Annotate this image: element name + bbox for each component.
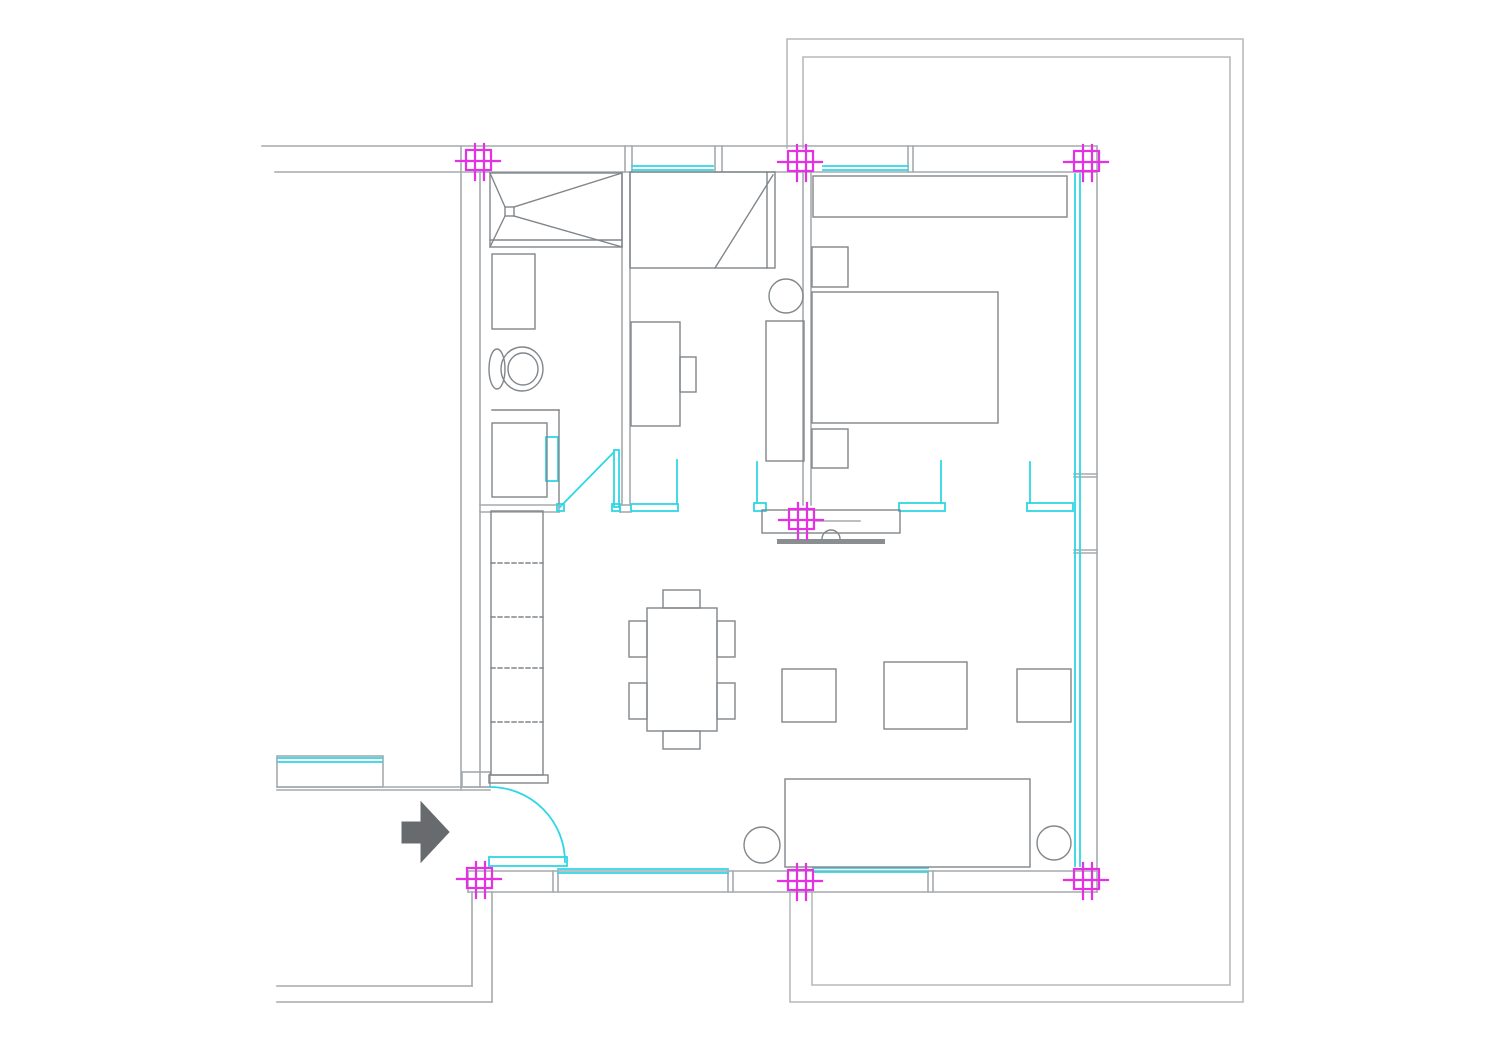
dining-chair-top <box>663 590 700 608</box>
bedroom-shelf <box>813 176 1067 217</box>
grid-markers <box>456 144 1108 900</box>
pouf-1 <box>782 669 836 722</box>
floor-plan-page <box>0 0 1500 1061</box>
grid-marker-7 <box>1064 863 1108 899</box>
dining-chair-left-2 <box>629 683 647 719</box>
shower-slope-line <box>490 216 505 247</box>
shower-tray <box>490 173 622 247</box>
grid-marker-6 <box>778 864 822 900</box>
tv-screen <box>777 539 885 544</box>
kitchen-plinth <box>489 775 548 783</box>
side-table-1 <box>744 827 780 863</box>
sofa <box>785 779 1030 867</box>
pouf-2 <box>1017 669 1071 722</box>
grid-marker-1 <box>456 144 500 180</box>
dining-chair-right-1 <box>717 621 735 657</box>
dressing-stool <box>769 279 803 313</box>
balcony-inner-edge <box>803 57 1230 985</box>
bathroom-fixtures <box>489 173 622 783</box>
entry-door-leaf <box>489 857 567 866</box>
bathroom-door-leaf <box>614 450 619 507</box>
dressing-cabinet <box>766 321 804 461</box>
desk <box>631 322 680 426</box>
side-table-2 <box>1037 826 1071 860</box>
dining-table <box>647 608 717 731</box>
dining-chair-left-1 <box>629 621 647 657</box>
wardrobe-door-diagonal <box>715 175 773 268</box>
dining-chair-right-2 <box>717 683 735 719</box>
corridor-window-sill <box>277 756 383 787</box>
nightstand-1 <box>812 247 848 287</box>
shower-slope-line <box>490 173 505 207</box>
bathroom-sink <box>492 254 535 329</box>
toilet-tank <box>489 349 505 389</box>
furniture <box>629 172 1071 867</box>
glazing-doors <box>278 166 1080 873</box>
grid-marker-3 <box>1064 145 1108 181</box>
bathroom-door-swing <box>560 452 614 507</box>
toilet-bowl-inner <box>508 353 538 385</box>
desk-chair <box>680 357 696 392</box>
bedroom-slider-panel <box>899 503 945 511</box>
entrance-direction-arrow <box>402 802 449 862</box>
entry-wall-nib <box>462 772 490 787</box>
washing-machine <box>492 423 547 497</box>
tv-mount <box>822 530 840 539</box>
coffee-table <box>884 662 967 729</box>
shower-slope-line <box>514 216 622 247</box>
bathroom-rail <box>546 437 558 481</box>
shower-drain <box>505 207 514 216</box>
bed <box>812 292 998 423</box>
dressing-door-panel <box>631 504 678 511</box>
shower-slope-line <box>514 173 622 207</box>
entry-door-swing <box>490 787 565 862</box>
floor-plan-drawing <box>0 0 1500 1061</box>
wardrobe <box>630 172 775 268</box>
kitchen-unit <box>491 511 543 775</box>
entrance-arrow <box>402 802 449 862</box>
living-slider-panel <box>1027 503 1073 511</box>
dining-chair-bottom <box>663 731 700 749</box>
interior-walls <box>480 172 860 521</box>
nightstand-2 <box>812 429 848 468</box>
